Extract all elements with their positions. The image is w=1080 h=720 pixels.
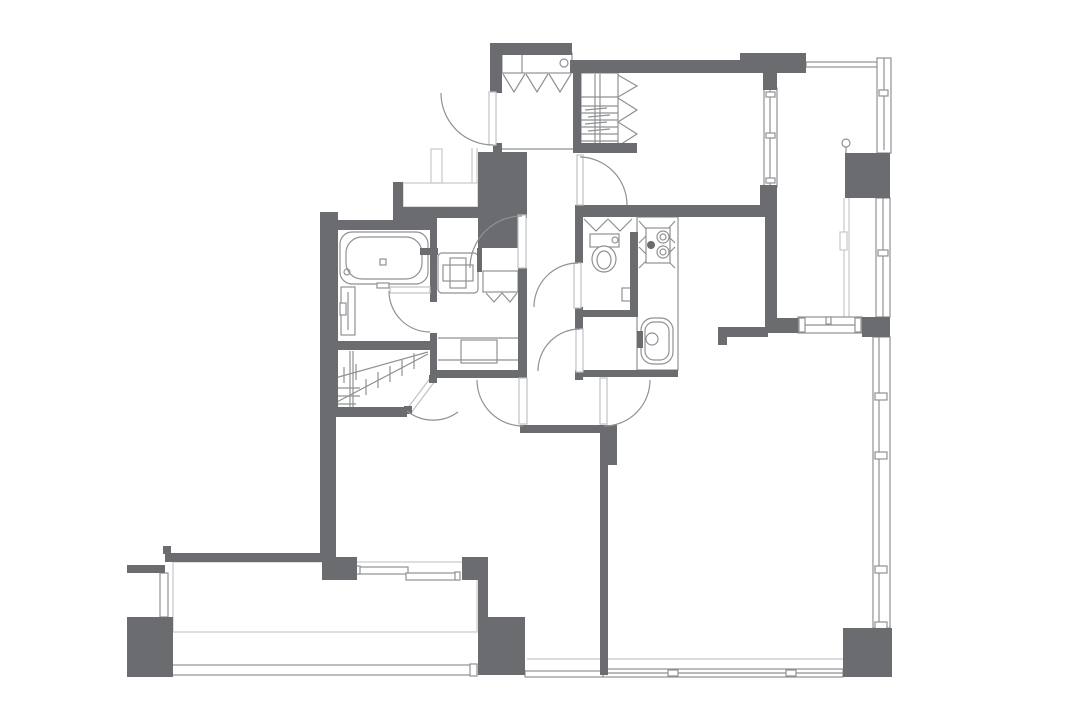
wall [718, 327, 768, 337]
counter-hatch [639, 261, 646, 268]
washer-pan [438, 253, 478, 293]
wall [430, 350, 437, 373]
counter-hatch [639, 247, 646, 254]
wall [462, 557, 488, 580]
wall [490, 43, 572, 55]
wall [520, 425, 600, 433]
wall [335, 341, 435, 350]
window-sash [878, 250, 888, 256]
wall [478, 152, 527, 218]
closet-shelf-mark [585, 108, 607, 110]
window-sash [879, 90, 888, 96]
wall [630, 232, 638, 310]
wall [393, 207, 480, 218]
cabinet-door-mark [549, 74, 571, 92]
wall [578, 205, 760, 217]
door-leaf [518, 215, 526, 268]
door-swing-arc [389, 291, 430, 332]
door-leaf [577, 155, 583, 205]
window-sash [766, 92, 775, 97]
sliding-door-panel [406, 573, 457, 580]
wall [570, 60, 740, 73]
wall [330, 407, 407, 417]
cabinet-door-mark [503, 74, 525, 92]
window-sash [855, 318, 861, 332]
floor-plan-page [0, 0, 1080, 720]
wall-column [478, 617, 525, 675]
door-leaf [390, 287, 430, 293]
window-sash [799, 318, 805, 332]
pipe-shaft [431, 149, 442, 183]
balcony-railing-top [806, 62, 877, 67]
cabinet-door-mark [584, 219, 608, 231]
cabinet-door-mark [502, 293, 517, 302]
door-swing-arc [407, 411, 458, 420]
wall [740, 53, 806, 73]
wall [765, 318, 798, 333]
wall [320, 212, 338, 417]
closet-shelf-mark [585, 122, 607, 124]
wall [573, 73, 581, 153]
door-swing-arc [477, 380, 523, 426]
wall [718, 337, 727, 345]
counter-hatch [639, 221, 646, 229]
door-leaf [519, 378, 527, 424]
wall [518, 268, 527, 378]
wall [600, 425, 617, 465]
door-hinge-post [429, 375, 437, 383]
closet-door-mark [618, 122, 637, 146]
cabinet-door-mark [526, 74, 548, 92]
wall [165, 553, 322, 562]
door-leaf [576, 329, 583, 372]
counter-hatch [639, 236, 646, 243]
wall [490, 55, 502, 93]
balcony-drain-box [840, 232, 847, 250]
balcony-railing [164, 665, 477, 675]
window [525, 671, 603, 677]
washer-pan-cross [443, 265, 473, 281]
wall [862, 317, 890, 337]
window-sash [875, 393, 887, 400]
wall [600, 465, 608, 675]
wall [573, 143, 637, 153]
wall [763, 73, 777, 90]
window [160, 573, 168, 617]
wall [765, 217, 777, 318]
bathtub-overflow [380, 259, 386, 265]
closet-door-mark [618, 75, 637, 97]
toilet-paper-holder [622, 288, 631, 301]
door-leaf [600, 378, 607, 424]
toilet-bowl [592, 246, 616, 272]
closet-door-mark [618, 98, 637, 122]
wall [320, 417, 336, 557]
bathtub-faucet [377, 283, 389, 288]
door-leaf [489, 92, 496, 145]
closet-shelf-mark [588, 115, 610, 117]
wall [575, 370, 678, 377]
door-swing-arc [441, 93, 493, 145]
wall [575, 317, 583, 329]
wall [478, 580, 488, 617]
cabinet-door-mark [608, 219, 632, 231]
entrance-porch [403, 183, 478, 207]
window-sash [875, 622, 887, 629]
wall [430, 370, 527, 378]
sliding-door-panel [358, 567, 408, 574]
wall [322, 557, 357, 580]
toilet-tank [590, 234, 619, 247]
shower-faucet [340, 303, 346, 315]
wall [477, 248, 482, 272]
window-sash [766, 133, 775, 138]
sink-faucet [637, 331, 643, 348]
sliding-door-frame [455, 572, 460, 580]
door-hinge-post [404, 406, 412, 414]
wall [127, 565, 165, 573]
hose-bib [842, 139, 850, 147]
window-sash [668, 670, 678, 676]
wall [163, 546, 171, 554]
wall [575, 310, 638, 317]
window [873, 337, 890, 628]
window-sash [766, 178, 775, 183]
wall [393, 218, 432, 230]
window-sash [875, 566, 887, 573]
window-sash [826, 317, 831, 324]
wall [760, 185, 777, 217]
cabinet-door-mark [486, 293, 502, 302]
floor-plan-svg [0, 0, 1080, 720]
closet-shelf-mark [588, 129, 610, 131]
railing-post [470, 664, 477, 676]
cabinet [483, 271, 518, 292]
door-swing-arc [538, 329, 580, 371]
wall [393, 182, 403, 207]
door-leaf [574, 263, 581, 308]
wall-column [127, 617, 173, 677]
shoe-cabinet [502, 53, 572, 73]
window-sash [875, 452, 887, 459]
washer-pan-cross [450, 258, 466, 288]
wall-column [843, 628, 892, 677]
stove-knob [647, 241, 655, 249]
door-swing-arc [580, 157, 627, 205]
door-swing-arc [604, 380, 650, 426]
wall [430, 218, 437, 302]
wall-column [845, 153, 890, 198]
door-swing-arc [534, 263, 578, 307]
window-sash [786, 670, 796, 676]
